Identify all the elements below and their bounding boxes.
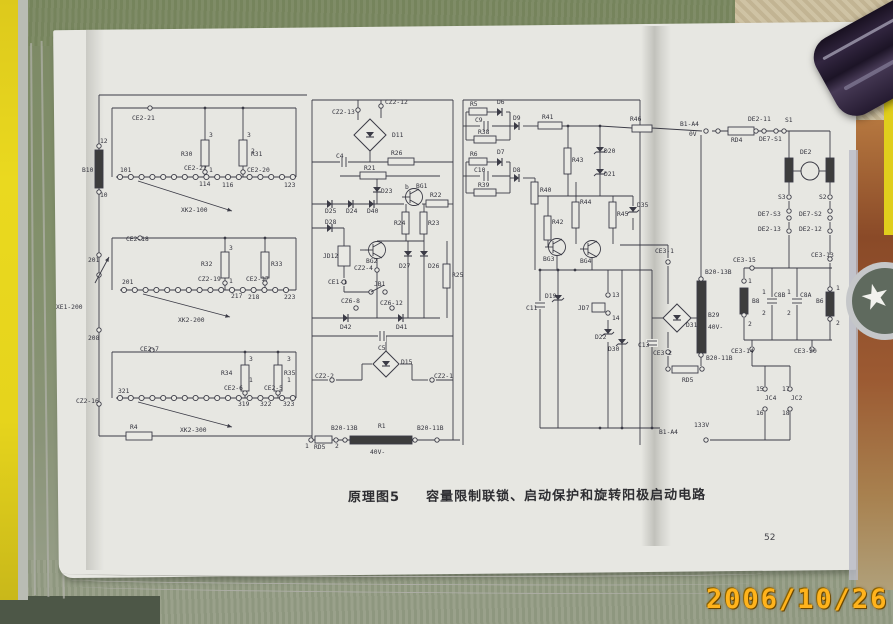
schematic-label: CE2-21	[132, 115, 155, 122]
schematic-label: D30	[608, 346, 620, 353]
schematic-label: 3	[287, 356, 291, 363]
schematic-label: R26	[391, 150, 403, 157]
schematic-label: DE7-S2	[799, 211, 822, 218]
schematic-label: JC2	[791, 395, 803, 402]
schematic-label: 40V-	[708, 324, 723, 331]
schematic-label: B29	[708, 312, 720, 319]
schematic-label: CZ2-16	[76, 398, 99, 405]
schematic-label: 319	[238, 401, 250, 408]
schematic-label: DE2	[800, 149, 812, 156]
schematic-label: CZ6-12	[380, 300, 403, 307]
schematic-label: CE2-6	[224, 385, 243, 392]
schematic-label: 13	[612, 292, 620, 299]
schematic-label: R30	[181, 151, 193, 158]
schematic-label: CZ2-13	[332, 109, 355, 116]
schematic-label: 12	[100, 138, 108, 145]
figure-caption-label: 原理图5	[348, 490, 400, 505]
schematic-label: D35	[637, 202, 649, 209]
schematic-label: 18	[782, 410, 790, 417]
schematic-svg: 12B1010CE2-21101R30R313132CE2-22CE2-2011…	[0, 0, 893, 624]
schematic-label: B20-13B	[705, 269, 732, 276]
schematic-label: CE2-7	[140, 346, 159, 353]
schematic-label: CE3-15	[733, 257, 756, 264]
schematic-label: D24	[346, 208, 358, 215]
schematic-label: 321	[118, 388, 130, 395]
schematic-label: R6	[470, 151, 478, 158]
schematic-label: C9	[475, 117, 483, 124]
schematic-label: 15	[756, 386, 764, 393]
schematic-label: XK2-300	[180, 427, 207, 434]
schematic-label: D6	[497, 99, 505, 106]
schematic-label: R4	[130, 424, 138, 431]
schematic-label: R39	[478, 182, 490, 189]
schematic-label: D21	[604, 171, 616, 178]
schematic-label: D9	[513, 115, 521, 122]
schematic-label: CE3-13	[811, 252, 834, 259]
schematic-label: R21	[364, 165, 376, 172]
schematic-label: B20-11B	[417, 425, 444, 432]
schematic-label: 2	[787, 310, 791, 317]
schematic-label: C4	[336, 153, 344, 160]
schematic-label: 133V	[694, 422, 709, 429]
schematic-label: CE3-14	[731, 348, 754, 355]
schematic-label: JD7	[578, 305, 590, 312]
schematic-label: D27	[399, 263, 411, 270]
schematic-label: 2	[335, 443, 339, 450]
schematic-label: R5	[470, 101, 478, 108]
schematic-label: 2	[762, 310, 766, 317]
schematic-label: D8	[513, 167, 521, 174]
schematic-label: D42	[340, 324, 352, 331]
schematic-label: C8B	[774, 292, 786, 299]
schematic-label: B1-A4	[659, 429, 678, 436]
schematic-label: CE2-20	[247, 167, 270, 174]
schematic-label: D19	[545, 293, 557, 300]
schematic-label: 1	[748, 278, 752, 285]
schematic-label: C13	[638, 342, 650, 349]
schematic-label: 3	[247, 132, 251, 139]
schematic-label: 1	[209, 167, 213, 174]
schematic-label: C10	[474, 167, 486, 174]
schematic-label: CZ2-19	[198, 276, 221, 283]
schematic-label: C8A	[800, 292, 812, 299]
schematic-label: D41	[396, 324, 408, 331]
schematic-label: 14	[612, 315, 620, 322]
schematic-label: BG3	[543, 256, 555, 263]
schematic-label: D22	[595, 334, 607, 341]
schematic-label: RD5	[314, 444, 326, 451]
schematic-label: R32	[201, 261, 213, 268]
schematic-label: BG4	[580, 258, 592, 265]
schematic-label: 201	[122, 279, 134, 286]
schematic-label: 123	[284, 182, 296, 189]
schematic-label: B8	[752, 298, 760, 305]
schematic-label: D23	[381, 188, 393, 195]
schematic-label: CZ2-12	[385, 99, 408, 106]
schematic-label: 3	[249, 356, 253, 363]
schematic-label: 1	[836, 285, 840, 292]
schematic-label: D11	[392, 132, 404, 139]
schematic-label: R45	[617, 211, 629, 218]
schematic-label: CE2-5	[264, 385, 283, 392]
schematic-label: R41	[542, 114, 554, 121]
schematic-label: XE1-200	[56, 304, 83, 311]
schematic-label: RD4	[731, 137, 743, 144]
schematic-label: 1	[787, 289, 791, 296]
schematic-label: R1	[378, 423, 386, 430]
schematic-label: 217	[231, 293, 243, 300]
schematic-label: S3	[778, 194, 786, 201]
schematic-label: CE3-2	[653, 350, 672, 357]
schematic-label: S1	[785, 117, 793, 124]
schematic-label: R40	[540, 187, 552, 194]
schematic-label: CE3-20	[794, 348, 817, 355]
schematic-label: 3	[229, 245, 233, 252]
schematic-label: R35	[284, 370, 296, 377]
schematic-label: DE7-S3	[758, 211, 781, 218]
schematic-label: 2	[836, 320, 840, 327]
schematic-label: D26	[428, 263, 440, 270]
schematic-label: B1-A4	[680, 121, 699, 128]
schematic-label: B6	[816, 298, 824, 305]
schematic-label: D25	[325, 208, 337, 215]
schematic-label: 1	[305, 443, 309, 450]
photo-background: ★ 12B1010CE2-21101R30R313132CE2-22CE2-20…	[0, 0, 893, 624]
schematic-label: B20-11B	[706, 355, 733, 362]
schematic-label: R34	[221, 370, 233, 377]
figure-caption-title: 容量限制联锁、启动保护和旋转阳极启动电路	[426, 488, 706, 505]
schematic-label: DE2-12	[799, 226, 822, 233]
schematic-label: 201	[88, 257, 100, 264]
schematic-label: 16	[756, 410, 764, 417]
schematic-label: JB1	[374, 281, 386, 288]
schematic-label: C5	[378, 345, 386, 352]
schematic-label: R33	[271, 261, 283, 268]
schematic-label: D15	[401, 359, 413, 366]
schematic-label: 3	[209, 132, 213, 139]
schematic-label: D31	[686, 322, 698, 329]
schematic-label: 322	[260, 401, 272, 408]
schematic-label: R22	[430, 192, 442, 199]
schematic-label: XK2-200	[178, 317, 205, 324]
schematic-label: CE2-22	[184, 165, 207, 172]
schematic-label: 116	[222, 182, 234, 189]
schematic-label: R42	[552, 219, 564, 226]
schematic-label: BG1	[416, 183, 428, 190]
schematic-label: B10	[82, 167, 94, 174]
schematic-label: 101	[120, 167, 132, 174]
schematic-label: 2	[748, 321, 752, 328]
schematic-label: JC4	[765, 395, 777, 402]
schematic-label: B20-13B	[331, 425, 358, 432]
figure-caption: 原理图5容量限制联锁、启动保护和旋转阳极启动电路	[348, 484, 706, 505]
schematic-label: DE2-13	[758, 226, 781, 233]
date-stamp: 2006/10/26	[706, 584, 889, 615]
schematic-label: CE1-1	[328, 279, 347, 286]
schematic-label: R44	[580, 199, 592, 206]
schematic-label: 1	[229, 278, 233, 285]
schematic-label: D20	[604, 148, 616, 155]
schematic-label: 0V	[689, 131, 697, 138]
schematic-label: R38	[478, 129, 490, 136]
schematic-label: 40V-	[370, 449, 385, 456]
schematic-label: R25	[452, 272, 464, 279]
schematic-label: 114	[199, 181, 211, 188]
schematic-label: BG2	[366, 258, 378, 265]
schematic-label: D40	[367, 208, 379, 215]
schematic-label: S2	[819, 194, 827, 201]
schematic-label: R23	[428, 220, 440, 227]
schematic-label: 1	[287, 377, 291, 384]
schematic-label: DE2-11	[748, 116, 771, 123]
schematic-label: 218	[248, 294, 260, 301]
schematic-label: R46	[630, 116, 642, 123]
schematic-label: RD5	[682, 377, 694, 384]
schematic-label: CZ2-4	[354, 265, 373, 272]
schematic-label: CZ6-8	[341, 298, 360, 305]
schematic-label: 208	[88, 335, 100, 342]
schematic-label: R43	[572, 157, 584, 164]
schematic-label: XK2-100	[181, 207, 208, 214]
schematic-label: 323	[283, 401, 295, 408]
schematic-label: CE3-1	[655, 248, 674, 255]
schematic-label: CE2-18	[126, 236, 149, 243]
schematic-label: D28	[325, 219, 337, 226]
schematic-label: b	[405, 184, 409, 191]
schematic-label: 223	[284, 294, 296, 301]
schematic-label: 1	[249, 377, 253, 384]
schematic-label: R24	[394, 220, 406, 227]
page-number: 52	[764, 533, 775, 543]
schematic-label: JD12	[323, 253, 338, 260]
schematic-label: CZ2-2	[315, 373, 334, 380]
schematic-label: D7	[497, 149, 505, 156]
schematic-label: DE7-S1	[759, 136, 782, 143]
schematic-label: CZ2-1	[434, 373, 453, 380]
schematic-label: 10	[100, 192, 108, 199]
schematic-label: 2	[251, 148, 255, 155]
schematic-label: 1	[762, 289, 766, 296]
schematic-label: CE2-17	[246, 276, 269, 283]
schematic-label: C11	[526, 305, 538, 312]
schematic-label: 17	[782, 386, 790, 393]
